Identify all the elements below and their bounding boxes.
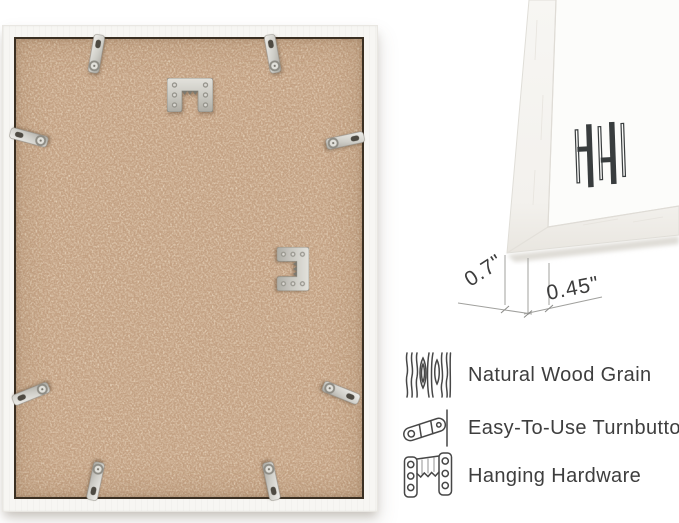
feature-row-hanging-hardware: Hanging Hardware (402, 451, 641, 501)
product-infographic: 0.7" 0.45" Natural Wood Grain (0, 0, 679, 523)
feature-label: Natural Wood Grain (468, 364, 652, 387)
sawtooth-hanger (167, 78, 213, 112)
wood-grain-icon (402, 352, 454, 398)
feature-row-turnbuttons: Easy-To-Use Turnbuttons (402, 403, 679, 453)
turnbutton-icon (402, 408, 454, 448)
feature-label: Hanging Hardware (468, 465, 641, 488)
feature-label: Easy-To-Use Turnbuttons (468, 417, 679, 440)
feature-row-wood-grain: Natural Wood Grain (402, 350, 652, 400)
sawtooth-hanger (277, 247, 309, 291)
hanging-hardware-icon (402, 450, 454, 502)
frame-back-photo (2, 25, 378, 512)
